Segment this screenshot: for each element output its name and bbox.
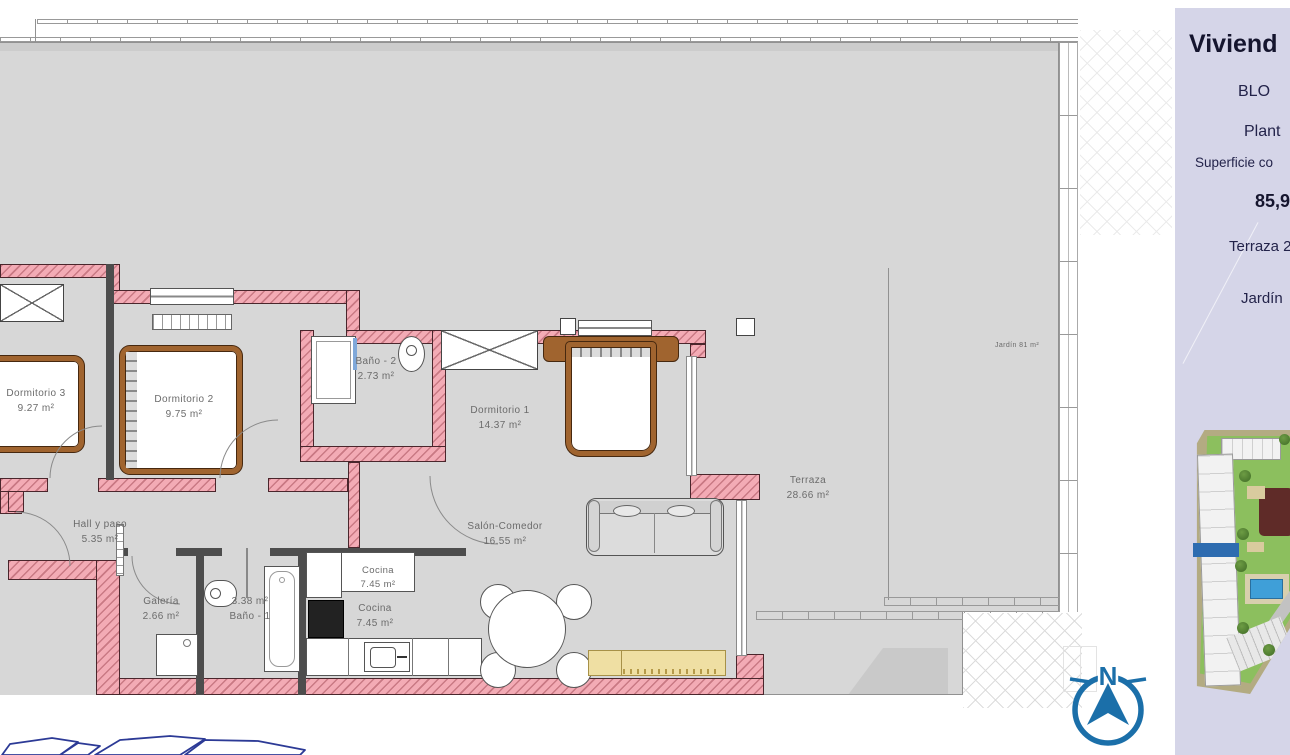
door-arcs: [0, 0, 1290, 755]
siteplan-unit-marker: [1193, 543, 1239, 557]
siteplan-tree-3: [1235, 560, 1247, 572]
siteplan-tree-1: [1239, 470, 1251, 482]
room-label-dormitorio1: Dormitorio 114.37 m²: [444, 403, 556, 433]
sidebar-bloque: BLO: [1238, 83, 1270, 101]
room-label-bano1: 3.38 m²Baño - 1: [194, 594, 306, 624]
room-label-terraza: Terraza28.66 m²: [752, 473, 864, 503]
sidebar-planta: Plant: [1244, 123, 1280, 141]
sidebar-jardin: Jardín: [1241, 290, 1283, 307]
siteplan-tree-4: [1237, 622, 1249, 634]
floorplan-page: Dormitorio 39.27 m² Dormitorio 29.75 m² …: [0, 0, 1290, 755]
building-sketch: [0, 726, 330, 755]
room-label-hall: Hall y paso5.35 m²: [44, 517, 156, 547]
room-label-salon: Salón-Comedor16.55 m²: [449, 519, 561, 549]
siteplan-tree-5: [1263, 644, 1275, 656]
siteplan-tree-2: [1237, 528, 1249, 540]
compass-rose: N: [1062, 652, 1154, 752]
sidebar-superficie: Superficie co: [1195, 155, 1273, 170]
compass-needle: [1087, 683, 1129, 725]
room-label-cocina-box: Cocina7.45 m²: [338, 564, 418, 592]
siteplan-tree-6: [1279, 434, 1290, 445]
sidebar-terraza: Terraza 2: [1229, 238, 1290, 255]
room-label-bano2: Baño - 22.73 m²: [330, 354, 422, 384]
siteplan-path-tan-1: [1247, 486, 1265, 499]
room-label-jardin: Jardín 81 m²: [972, 341, 1062, 350]
room-label-dormitorio2: Dormitorio 29.75 m²: [128, 392, 240, 422]
siteplan-plot: [1195, 430, 1290, 694]
room-label-cocina: Cocina7.45 m²: [319, 601, 431, 631]
siteplan-pool: [1250, 579, 1283, 599]
siteplan-path-tan-2: [1247, 542, 1264, 552]
room-label-dormitorio3: Dormitorio 39.27 m²: [0, 386, 92, 416]
siteplan-thumbnail: [1192, 428, 1290, 696]
sidebar-title: Viviend: [1189, 30, 1277, 59]
sidebar-superficie-value: 85,9: [1255, 191, 1290, 212]
